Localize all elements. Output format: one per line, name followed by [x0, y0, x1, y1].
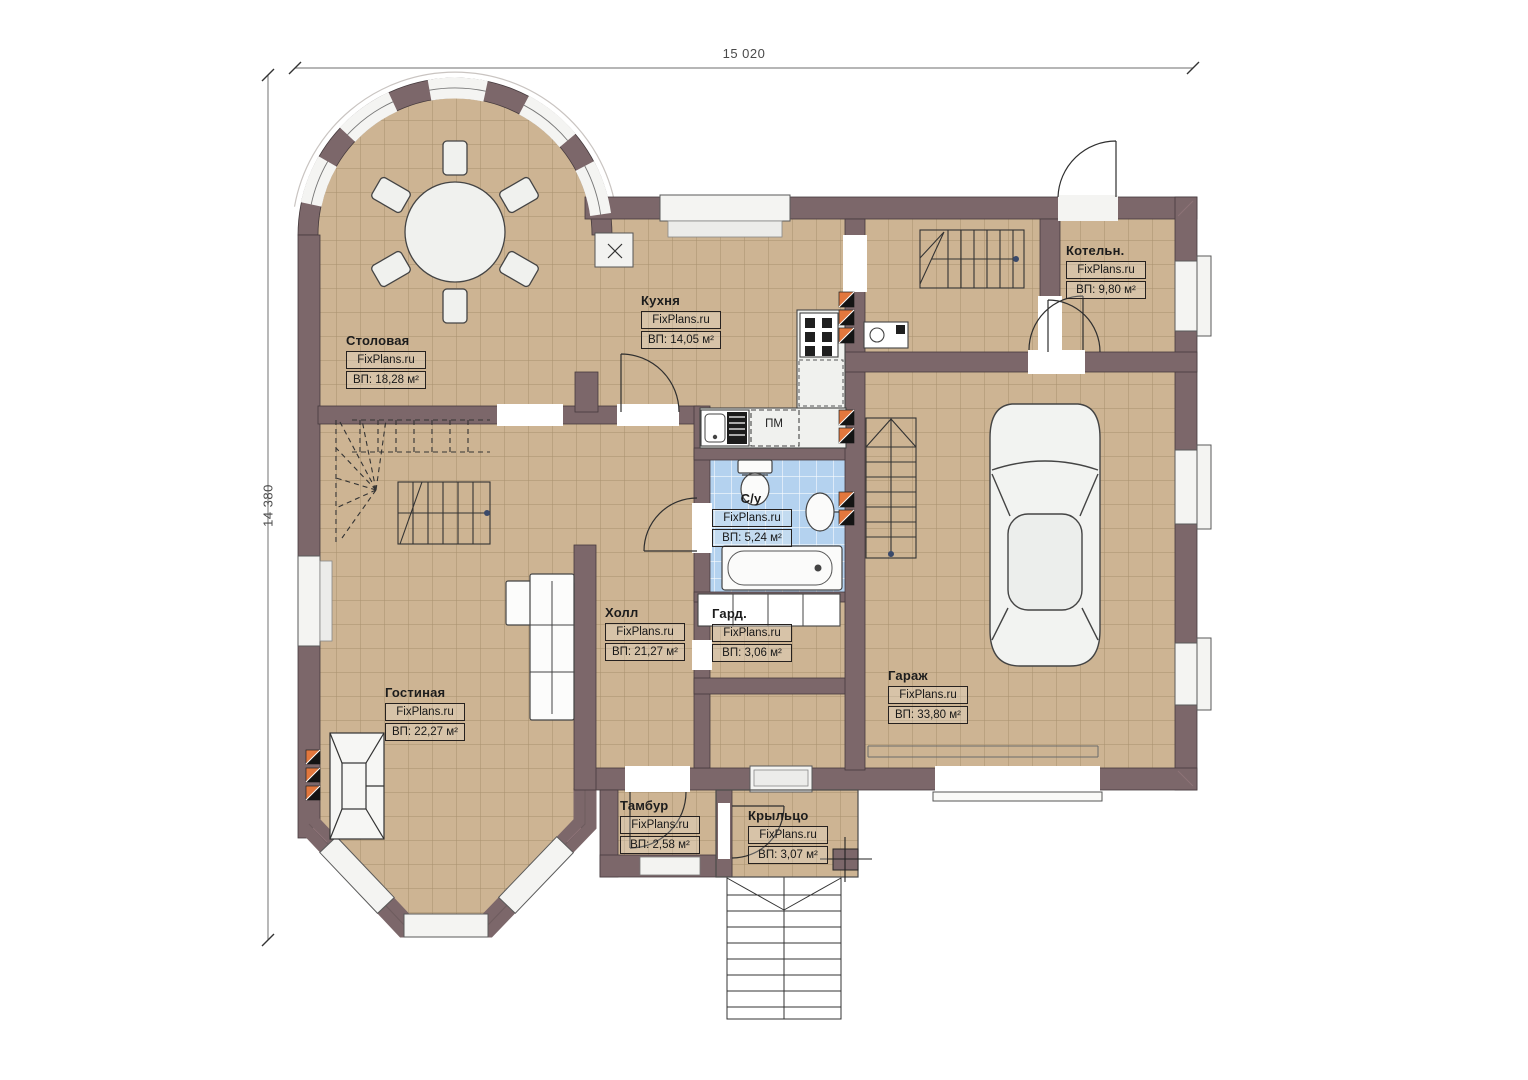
fireplace — [330, 733, 384, 839]
kitchen-window — [660, 195, 790, 221]
dimension-height: 14 380 — [261, 456, 276, 556]
room-name: С/у — [712, 491, 790, 506]
room-name: Котельн. — [1066, 243, 1146, 258]
room-area: ВП: 9,80 м² — [1066, 281, 1146, 299]
watermark: FixPlans.ru — [620, 816, 700, 834]
room-label-bathroom: С/у FixPlans.ru ВП: 5,24 м² — [712, 491, 792, 547]
car — [990, 404, 1100, 666]
room-area: ВП: 18,28 м² — [346, 371, 426, 389]
wall-living-hall — [574, 545, 596, 790]
garage-window-2 — [1175, 643, 1197, 705]
room-area: ВП: 22,27 м² — [385, 723, 465, 741]
chimney-box — [595, 233, 633, 267]
room-label-garage: Гараж FixPlans.ru ВП: 33,80 м² — [888, 668, 968, 724]
room-name: Столовая — [346, 333, 426, 348]
boiler-window — [1175, 261, 1197, 331]
living-window — [298, 556, 320, 646]
room-area: ВП: 3,07 м² — [748, 846, 828, 864]
watermark: FixPlans.ru — [641, 311, 721, 329]
room-name: Гард. — [712, 606, 792, 621]
room-name: Гараж — [888, 668, 968, 683]
floorplan-page: 15 020 14 380 ПМ Столовая FixPlans.ru ВП… — [0, 0, 1528, 1080]
wall-wardrobe-bottom — [694, 678, 846, 694]
room-area: ВП: 14,05 м² — [641, 331, 721, 349]
dimension-width: 15 020 — [694, 46, 794, 61]
exterior-stair — [727, 877, 841, 1019]
garage-door-opening — [935, 766, 1100, 792]
left-wall — [298, 235, 320, 838]
garage-window-1 — [1175, 450, 1197, 524]
washing-machine — [864, 322, 908, 348]
wall-bath-top — [694, 448, 846, 460]
bay-window-bottom — [404, 914, 488, 937]
bathtub-drain — [815, 565, 822, 572]
room-label-vestibule: Тамбур FixPlans.ru ВП: 2,58 м² — [620, 798, 700, 854]
watermark: FixPlans.ru — [385, 703, 465, 721]
entrance-door — [1058, 141, 1116, 197]
watermark: FixPlans.ru — [712, 509, 792, 527]
wall-garage-top — [845, 352, 1197, 372]
watermark: FixPlans.ru — [712, 624, 792, 642]
entrance-opening — [1058, 195, 1118, 221]
room-name: Тамбур — [620, 798, 700, 813]
room-label-dining: Столовая FixPlans.ru ВП: 18,28 м² — [346, 333, 426, 389]
room-name: Холл — [605, 605, 685, 620]
room-label-kitchen: Кухня FixPlans.ru ВП: 14,05 м² — [641, 293, 721, 349]
garage-door-panel — [933, 792, 1102, 801]
watermark: FixPlans.ru — [888, 686, 968, 704]
room-area: ВП: 2,58 м² — [620, 836, 700, 854]
washbasin — [806, 493, 834, 531]
room-area: ВП: 5,24 м² — [712, 529, 792, 547]
room-label-porch: Крыльцо FixPlans.ru ВП: 3,07 м² — [748, 808, 828, 864]
wall-stub — [575, 372, 598, 412]
watermark: FixPlans.ru — [748, 826, 828, 844]
dishwasher-note: ПМ — [753, 418, 795, 430]
room-label-living: Гостиная FixPlans.ru ВП: 22,27 м² — [385, 685, 465, 741]
watermark: FixPlans.ru — [605, 623, 685, 641]
watermark: FixPlans.ru — [346, 351, 426, 369]
room-name: Гостиная — [385, 685, 465, 700]
watermark: FixPlans.ru — [1066, 261, 1146, 279]
room-label-boiler: Котельн. FixPlans.ru ВП: 9,80 м² — [1066, 243, 1146, 299]
toilet-tank — [738, 460, 772, 473]
room-name: Кухня — [641, 293, 721, 308]
room-area: ВП: 33,80 м² — [888, 706, 968, 724]
room-area: ВП: 3,06 м² — [712, 644, 792, 662]
room-name: Крыльцо — [748, 808, 828, 823]
room-label-wardrobe: Гард. FixPlans.ru ВП: 3,06 м² — [712, 606, 792, 662]
room-area: ВП: 21,27 м² — [605, 643, 685, 661]
room-label-hall: Холл FixPlans.ru ВП: 21,27 м² — [605, 605, 685, 661]
